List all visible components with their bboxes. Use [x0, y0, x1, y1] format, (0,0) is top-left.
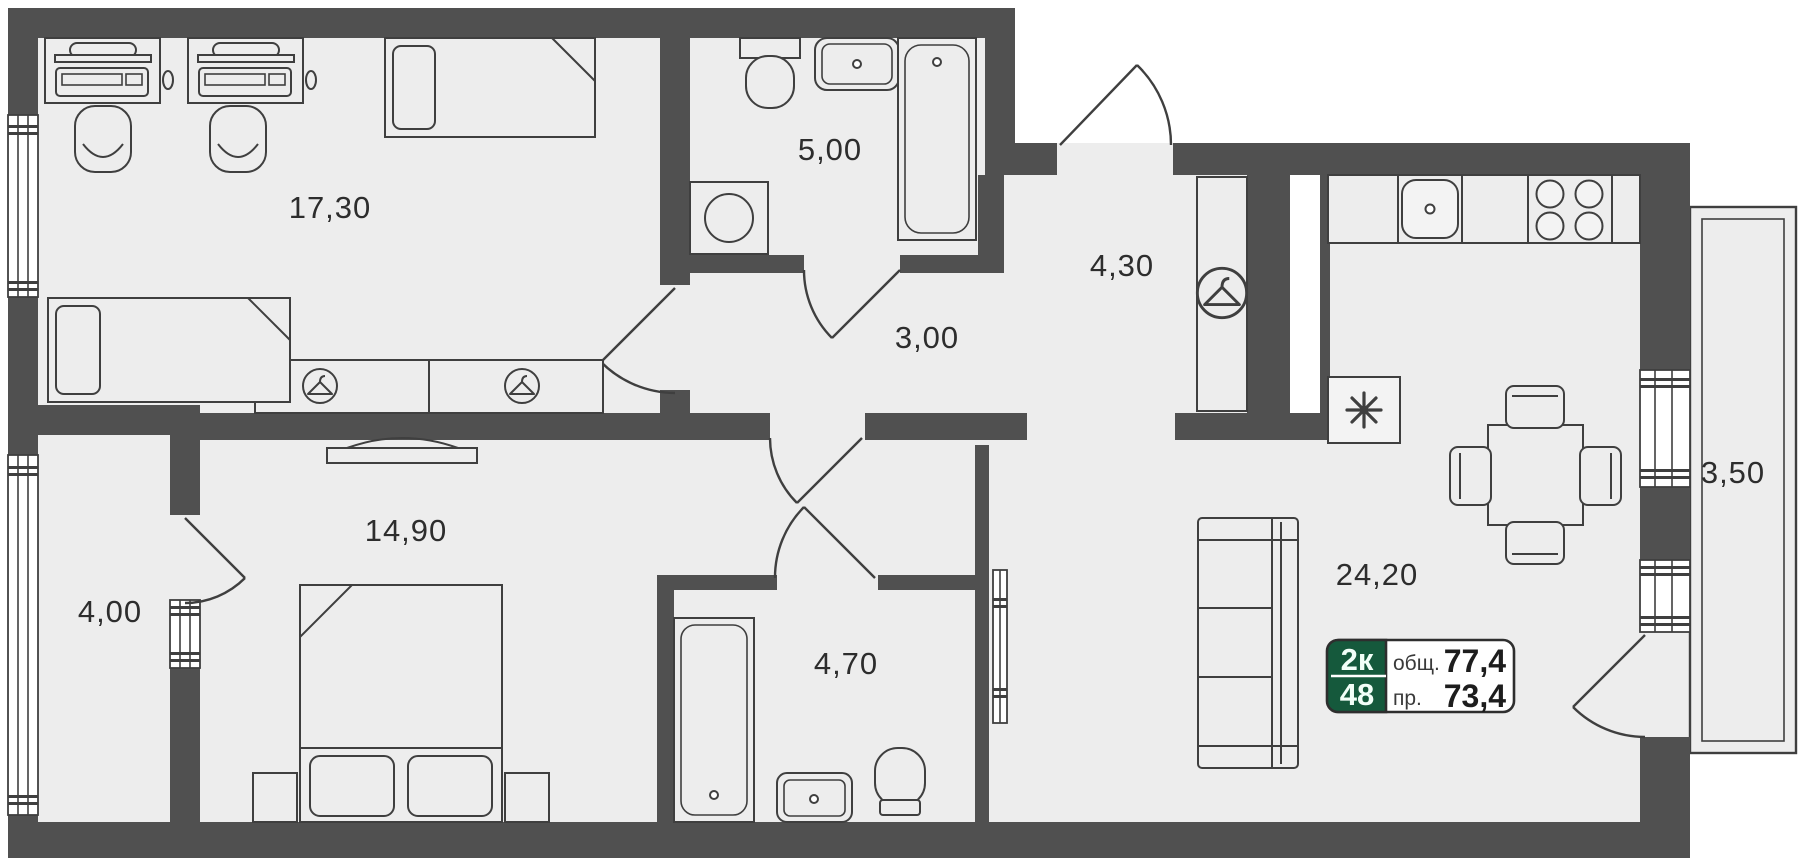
- office-chair-2: [210, 106, 266, 172]
- sink-main: [777, 773, 852, 822]
- window-balcony-left: [8, 455, 38, 815]
- sofa: [1198, 518, 1298, 768]
- kitchen-sink: [1402, 180, 1458, 238]
- badge-total-label: общ.: [1393, 652, 1440, 675]
- window-living-2: [1640, 560, 1690, 632]
- wardrobe-corridor: [1197, 177, 1247, 411]
- badge-total-value: 77,4: [1444, 643, 1506, 679]
- washing-machine: [690, 182, 768, 254]
- bed-single-top: [385, 38, 595, 137]
- room-label-corridor: 4,30: [1090, 248, 1154, 283]
- shaft: [1290, 175, 1320, 413]
- room-label-kitchen-living: 24,20: [1336, 557, 1419, 592]
- badge-project-value: 73,4: [1444, 678, 1506, 714]
- desk-2: [188, 38, 316, 103]
- hanger-icon: [1197, 268, 1246, 317]
- window-bedroom-balcony: [170, 600, 200, 668]
- snowflake-icon: [1347, 393, 1381, 427]
- desk-1: [45, 38, 173, 103]
- window-office: [8, 115, 38, 297]
- room-label-balcony-right: 3,50: [1701, 455, 1765, 490]
- plan-info-badge: 2к 48 общ. 77,4 пр. 73,4: [1327, 640, 1514, 714]
- hanger-icon: [505, 369, 539, 403]
- toilet-top: [740, 38, 800, 108]
- bathtub-top: [898, 38, 976, 240]
- floor-plan-canvas: 17,30 5,00 3,00 4,30 24,20 14,90 4,00 4,…: [0, 0, 1802, 868]
- room-label-office: 17,30: [289, 190, 372, 225]
- bed-single-bottom: [48, 298, 290, 402]
- floor-plan-page: 17,30 5,00 3,00 4,30 24,20 14,90 4,00 4,…: [0, 0, 1802, 868]
- bed-double: [300, 585, 502, 822]
- badge-rooms: 2к: [1341, 642, 1374, 677]
- nightstand-right: [505, 773, 549, 822]
- room-label-bathroom-main: 4,70: [814, 646, 878, 681]
- fridge: [1328, 377, 1400, 443]
- hanger-icon: [303, 369, 337, 403]
- room-label-hall: 3,00: [895, 320, 959, 355]
- badge-lot: 48: [1340, 677, 1374, 712]
- badge-project-label: пр.: [1393, 687, 1422, 710]
- wardrobe-office: [255, 360, 603, 413]
- window-living-1: [1640, 370, 1690, 487]
- room-label-balcony-left: 4,00: [78, 594, 142, 629]
- office-chair-1: [75, 106, 131, 172]
- room-label-bathroom-top: 5,00: [798, 132, 862, 167]
- bathtub-main: [674, 618, 754, 822]
- entry-door: [1060, 65, 1171, 145]
- room-label-bedroom: 14,90: [365, 513, 448, 548]
- sink-top: [815, 38, 899, 90]
- nightstand-left: [253, 773, 297, 822]
- toilet-main: [875, 748, 925, 815]
- kitchen-counter: [1328, 175, 1640, 243]
- radiator-panel: [993, 570, 1007, 723]
